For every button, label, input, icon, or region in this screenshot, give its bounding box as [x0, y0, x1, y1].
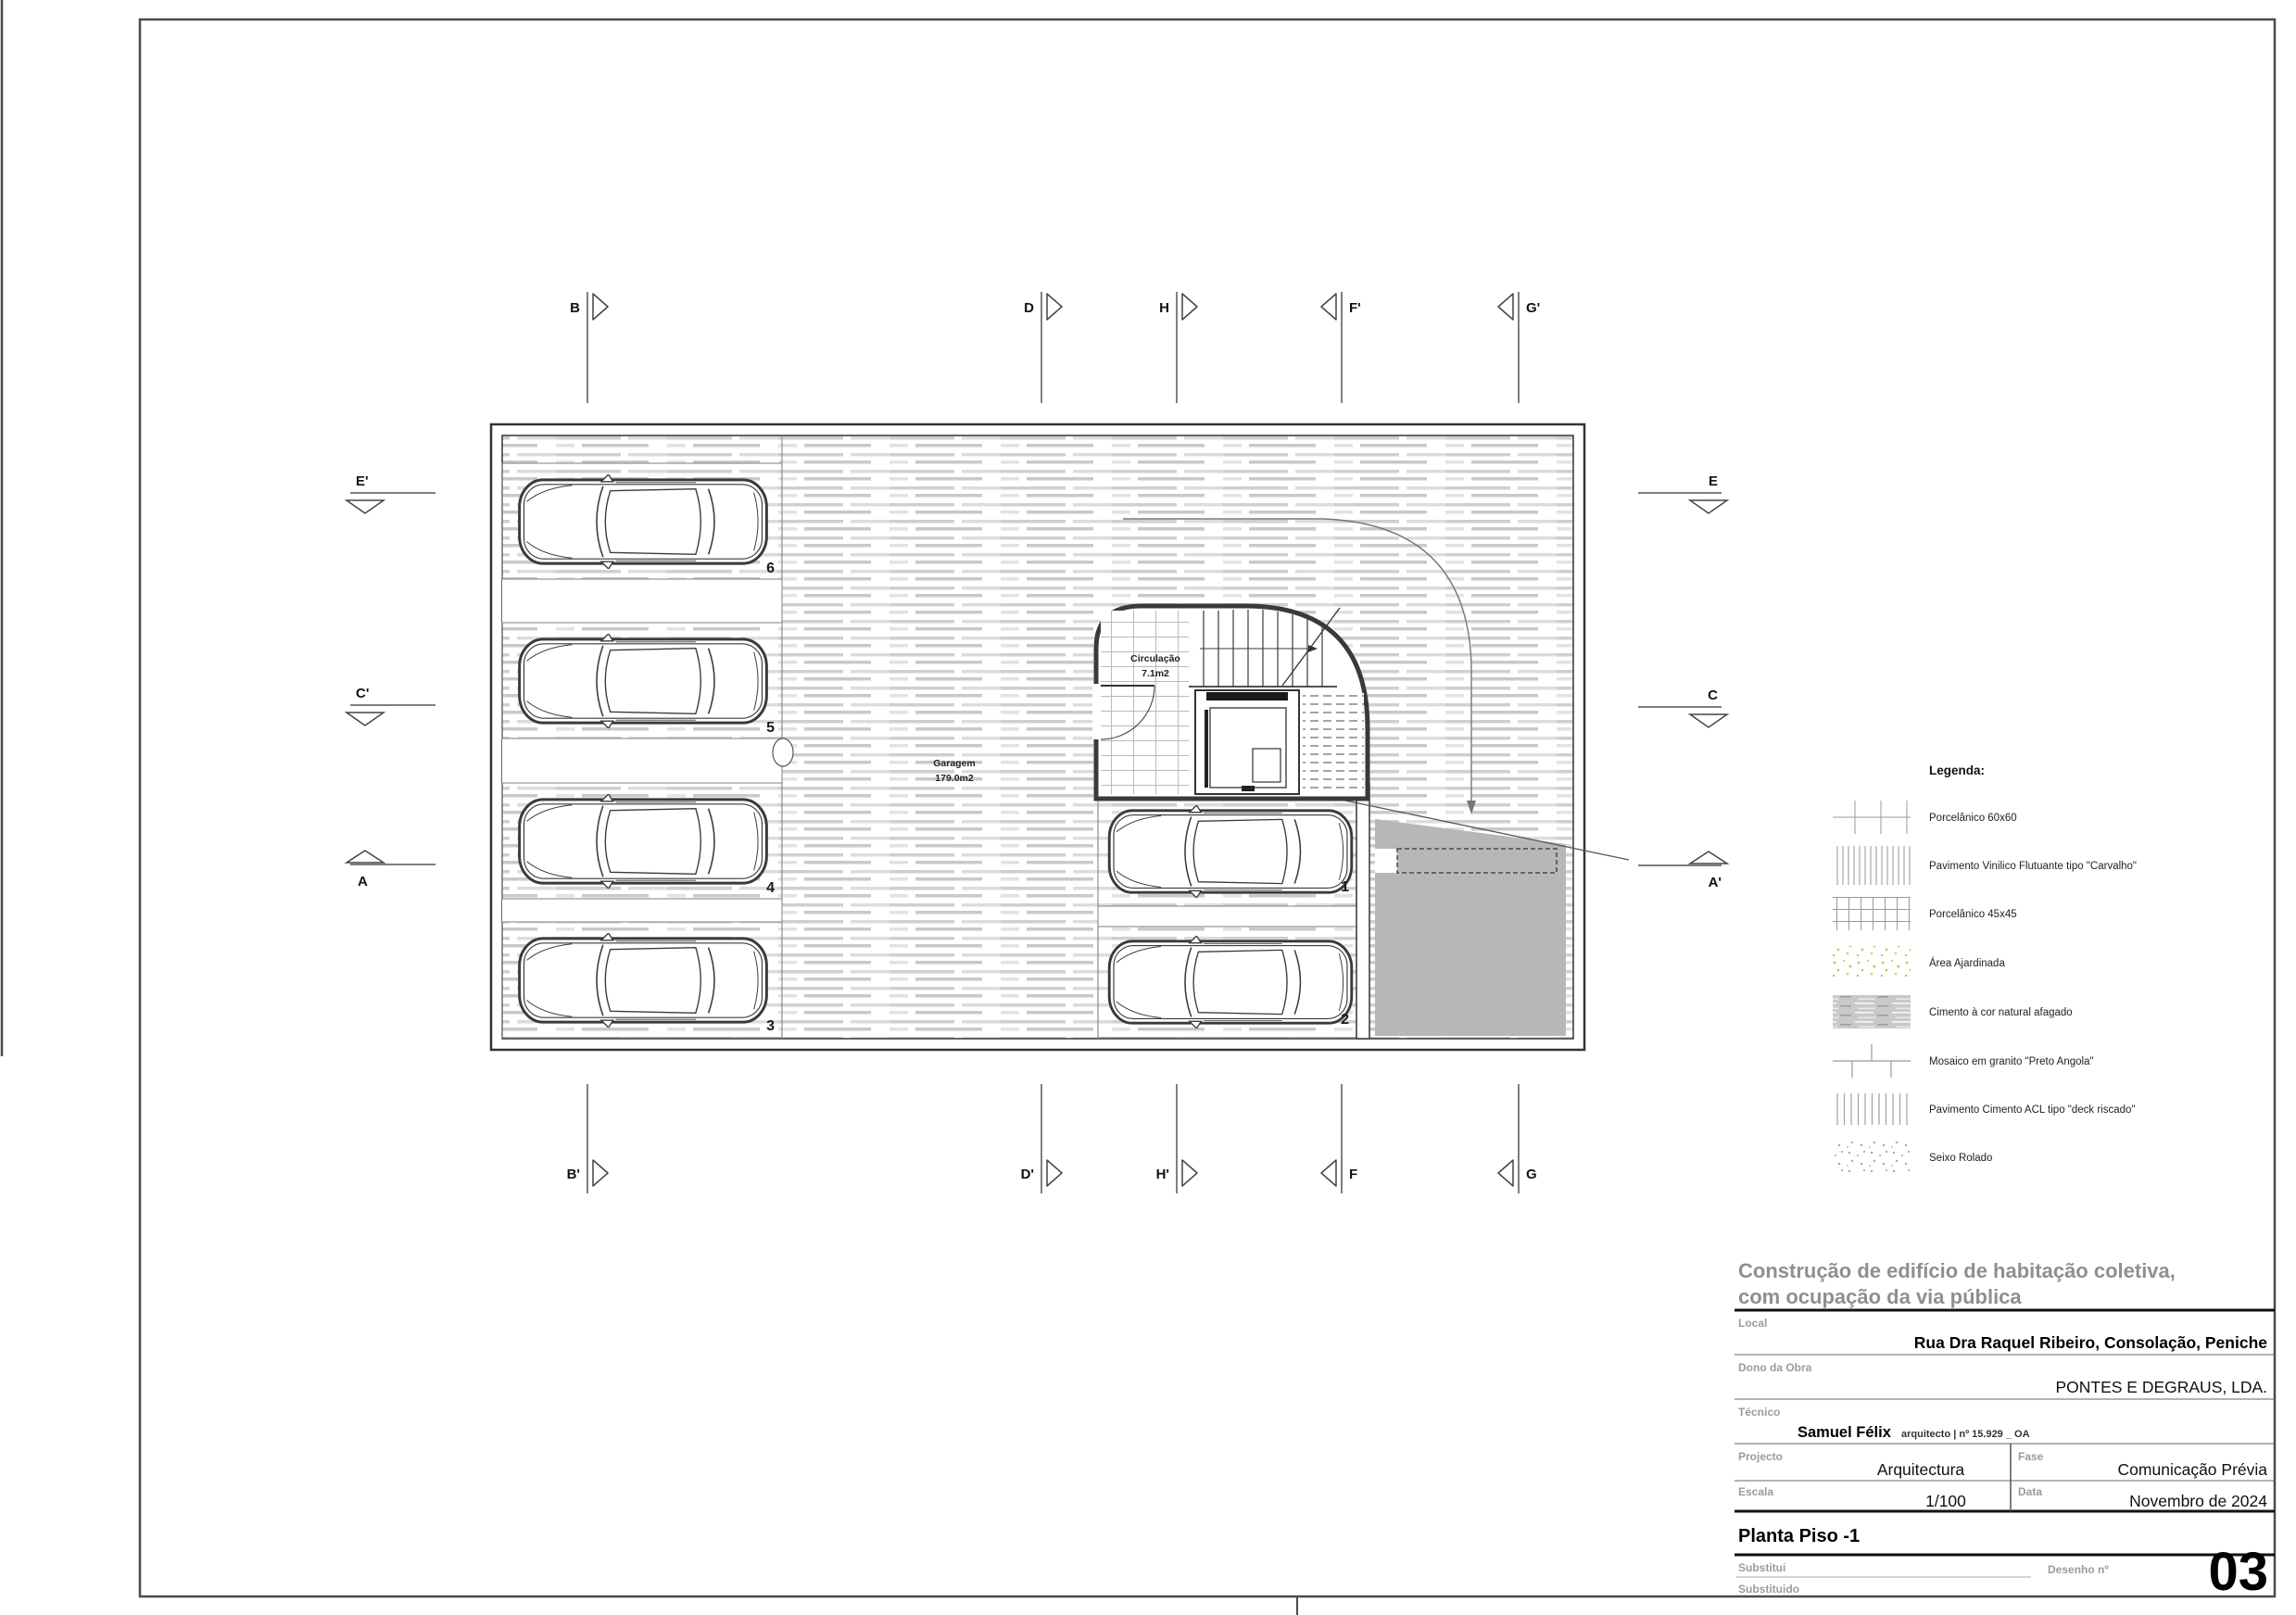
- field-value-tecnico-name: Samuel Félix: [1798, 1424, 1892, 1441]
- section-marker-left-c-prime: C': [347, 686, 435, 725]
- drawing-sheet: B D H F' G' B': [0, 0, 2296, 1615]
- ramp-slab: [1375, 819, 1566, 1036]
- section-label: E': [356, 473, 369, 489]
- section-arrow-icon: [347, 851, 384, 863]
- section-label: G: [1526, 1167, 1537, 1182]
- section-label: A: [358, 874, 368, 890]
- stair-core: Circulação 7.1m2: [1092, 606, 1368, 799]
- field-label-substituido: Substituido: [1738, 1583, 1799, 1596]
- legend-title: Legenda:: [1929, 763, 1985, 777]
- field-value-fase: Comunicação Prévia: [2118, 1460, 2268, 1479]
- legend-item-label: Porcelânico 60x60: [1929, 813, 2017, 824]
- legend-item-label: Área Ajardinada: [1929, 957, 2005, 969]
- parking-number: 5: [766, 720, 775, 736]
- section-arrow-icon: [1047, 1160, 1062, 1186]
- car-top-view: [520, 474, 767, 569]
- room-area-label: 7.1m2: [1142, 668, 1169, 679]
- room-label: Garagem: [933, 758, 976, 769]
- field-label-escala: Escala: [1738, 1485, 1773, 1498]
- section-label: B: [570, 300, 580, 316]
- section-label: C: [1708, 688, 1718, 703]
- section-arrow-icon: [1321, 294, 1336, 320]
- section-label: E: [1709, 473, 1718, 489]
- legend-swatch-pebble-dots: [1833, 1142, 1911, 1173]
- car-top-view: [1109, 936, 1352, 1028]
- sheet-title: Planta Piso -1: [1738, 1526, 1860, 1546]
- section-label: G': [1526, 300, 1540, 316]
- section-label: B': [567, 1167, 580, 1182]
- legend-item-label: Porcelânico 45x45: [1929, 909, 2017, 920]
- elevator: [1195, 690, 1299, 794]
- section-arrow-icon: [1498, 1160, 1513, 1186]
- legend-item-label: Pavimento Vinilico Flutuante tipo "Carva…: [1929, 861, 2137, 872]
- elevator-counterweight: [1253, 749, 1280, 782]
- section-label: A': [1709, 875, 1722, 890]
- section-label: D': [1021, 1167, 1034, 1182]
- section-arrow-icon: [1182, 294, 1197, 320]
- section-marker-top-f-prime: F': [1321, 292, 1361, 403]
- circulation-tiles: [1101, 611, 1189, 794]
- elevator-door-track: [1206, 692, 1288, 700]
- plan-canvas: B D H F' G' B': [0, 0, 2296, 1615]
- ventilation-grating: [1303, 693, 1364, 795]
- legend-item-label: Mosaico em granito "Preto Angola": [1929, 1056, 2094, 1067]
- field-label-desenho-numero: Desenho nº: [2048, 1563, 2109, 1576]
- section-arrow-icon: [593, 1160, 608, 1186]
- legend-swatch-grid-60: [1833, 801, 1911, 834]
- section-arrow-icon: [347, 500, 384, 513]
- section-label: H: [1159, 300, 1169, 316]
- car-top-view: [520, 794, 767, 889]
- section-marker-bottom-d-prime: D': [1021, 1084, 1062, 1193]
- field-label-tecnico: Técnico: [1738, 1406, 1780, 1419]
- legend-swatch-green-speckle: [1833, 946, 1911, 979]
- project-heading-line1: Construção de edifício de habitação cole…: [1738, 1259, 2176, 1282]
- ramp-notch: [1375, 849, 1397, 873]
- parking-number: 1: [1341, 879, 1349, 895]
- section-marker-left-a: A: [347, 851, 435, 890]
- section-label: H': [1156, 1167, 1169, 1182]
- section-label: F': [1349, 300, 1361, 316]
- section-marker-bottom-b-prime: B': [567, 1084, 608, 1193]
- parking-number: 4: [766, 880, 775, 896]
- field-label-data: Data: [2018, 1485, 2042, 1498]
- legend-swatch-vertical-lines: [1833, 846, 1911, 885]
- room-label: Circulação: [1130, 653, 1180, 664]
- section-label: D: [1024, 300, 1034, 316]
- room-area-label: 179.0m2: [935, 773, 974, 784]
- section-arrow-icon: [347, 713, 384, 725]
- section-marker-right-c: C: [1638, 688, 1727, 727]
- field-value-tecnico-details: arquitecto | nº 15.929 _ OA: [1901, 1429, 2030, 1440]
- section-marker-right-a-prime: A': [1638, 852, 1727, 890]
- section-marker-top-b: B: [570, 292, 608, 403]
- field-label-substitui: Substitui: [1738, 1561, 1785, 1574]
- parking-number: 2: [1341, 1012, 1349, 1028]
- field-value-data: Novembro de 2024: [2129, 1492, 2267, 1510]
- section-markers-left: E' C' A: [347, 473, 435, 890]
- car-top-view: [1109, 805, 1352, 898]
- section-arrow-icon: [1182, 1160, 1197, 1186]
- legend-swatch-deck-lines: [1833, 1093, 1911, 1125]
- section-arrow-icon: [1690, 852, 1727, 864]
- field-value-dono-da-obra: PONTES E DEGRAUS, LDA.: [2055, 1378, 2267, 1396]
- parking-number: 3: [766, 1018, 775, 1034]
- section-arrow-icon: [1690, 714, 1727, 727]
- section-marker-left-e-prime: E': [347, 473, 435, 513]
- project-heading-line2: com ocupação da via pública: [1738, 1285, 2022, 1308]
- section-label: C': [356, 686, 369, 701]
- car-top-view: [520, 634, 767, 728]
- parking-number: 6: [766, 561, 775, 576]
- field-label-projecto: Projecto: [1738, 1450, 1783, 1463]
- section-marker-bottom-h-prime: H': [1156, 1084, 1197, 1193]
- section-marker-top-d: D: [1024, 292, 1062, 403]
- legend: Legenda: Porcelânico 60x60 Pavimento Vin…: [1833, 763, 2137, 1173]
- ramp-area: [1345, 801, 1629, 1036]
- legend-swatch-granite-bricks: [1833, 1044, 1911, 1078]
- section-marker-right-e: E: [1638, 473, 1727, 513]
- ramp-dividing-wall: [1356, 783, 1369, 1039]
- legend-swatch-cement-streaks: [1833, 995, 1911, 1028]
- section-arrow-icon: [1047, 294, 1062, 320]
- section-arrow-icon: [1690, 500, 1727, 513]
- section-arrow-icon: [1321, 1160, 1336, 1186]
- section-arrow-icon: [593, 294, 608, 320]
- field-label-dono-da-obra: Dono da Obra: [1738, 1361, 1812, 1374]
- section-marker-bottom-g: G: [1498, 1084, 1537, 1193]
- title-block: Construção de edifício de habitação cole…: [1735, 1259, 2275, 1602]
- floor-plan: 6 5 4 3 1 2: [491, 424, 1629, 1050]
- field-value-projecto: Arquitectura: [1877, 1460, 1965, 1479]
- field-label-fase: Fase: [2018, 1450, 2044, 1463]
- section-arrow-icon: [1498, 294, 1513, 320]
- section-label: F: [1349, 1167, 1357, 1182]
- drawing-number: 03: [2208, 1542, 2268, 1602]
- elevator-rail: [1205, 710, 1208, 788]
- field-value-local: Rua Dra Raquel Ribeiro, Consolação, Peni…: [1914, 1333, 2267, 1352]
- field-value-escala: 1/100: [1925, 1492, 1966, 1510]
- section-marker-top-h: H: [1159, 292, 1197, 403]
- car-top-view: [520, 933, 767, 1028]
- column-marker: [773, 738, 793, 766]
- legend-item-label: Cimento à cor natural afagado: [1929, 1007, 2073, 1018]
- legend-item-label: Pavimento Cimento ACL tipo "deck riscado…: [1929, 1104, 2136, 1116]
- field-label-local: Local: [1738, 1317, 1767, 1330]
- legend-swatch-grid-45: [1833, 897, 1911, 930]
- section-marker-bottom-f: F: [1321, 1084, 1357, 1193]
- section-markers-top: B D H F' G': [570, 292, 1540, 403]
- section-markers-right: E C A': [1638, 473, 1727, 890]
- section-markers-bottom: B' D' H' F G: [567, 1084, 1537, 1193]
- elevator-sill: [1242, 786, 1255, 791]
- section-marker-top-g-prime: G': [1498, 292, 1540, 403]
- legend-item-label: Seixo Rolado: [1929, 1153, 1992, 1164]
